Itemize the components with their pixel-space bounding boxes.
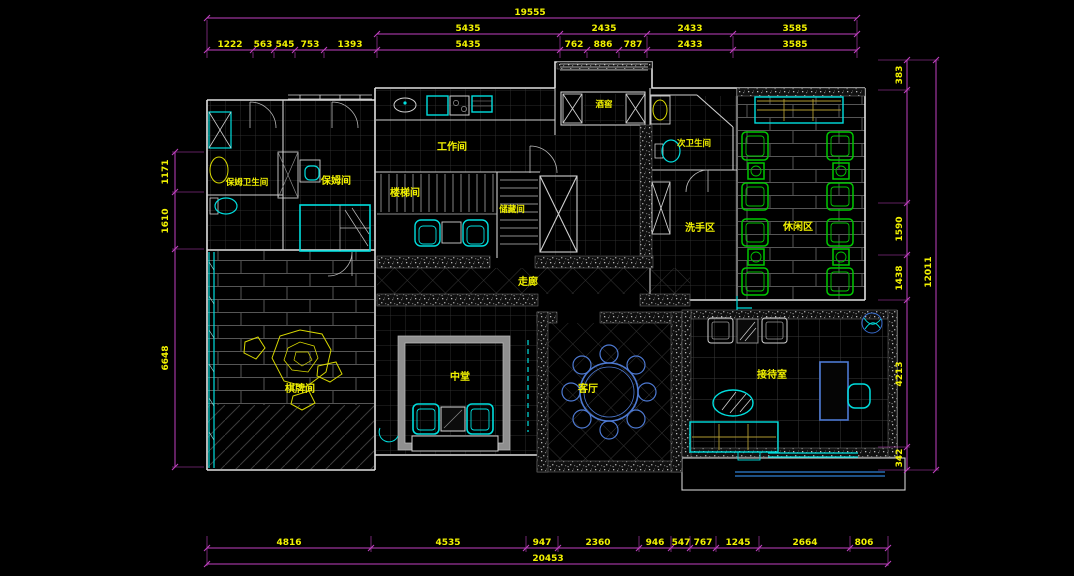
dim-top2-0: 5435 <box>455 24 480 34</box>
dim-right-0: 383 <box>895 66 905 85</box>
dim-right-overall: 12011 <box>924 256 934 287</box>
label-second-bathroom: 次卫生间 <box>677 138 711 149</box>
dim-top3-1: 563 <box>254 40 273 50</box>
dim-bot-3: 2360 <box>585 538 610 548</box>
label-chess-room: 棋牌间 <box>284 382 315 395</box>
label-storage: 储藏间 <box>498 204 525 215</box>
dim-top3-8: 787 <box>624 40 643 50</box>
dim-bot-7: 1245 <box>725 538 750 548</box>
dim-top3-3: 753 <box>301 40 320 50</box>
dim-bot-0: 4816 <box>276 538 301 548</box>
label-leisure-area: 休闲区 <box>782 220 813 233</box>
label-wine-cellar: 酒窖 <box>595 99 613 110</box>
stair-nook-chairs <box>415 220 488 246</box>
dim-bot-6: 767 <box>694 538 713 548</box>
dim-left-0: 1171 <box>161 159 171 184</box>
dim-top3-4: 1393 <box>337 40 362 50</box>
dim-bot-8: 2664 <box>792 538 817 548</box>
dim-bot-2: 947 <box>533 538 552 548</box>
dim-bot-5: 547 <box>672 538 691 548</box>
dim-left-1: 1610 <box>161 208 171 233</box>
dim-bot-9: 806 <box>855 538 874 548</box>
dim-top3-0: 1222 <box>217 40 242 50</box>
dim-top3-10: 3585 <box>782 40 807 50</box>
dim-right-2: 1438 <box>895 265 905 290</box>
dim-top2-3: 3585 <box>782 24 807 34</box>
label-corridor: 走廊 <box>517 275 538 288</box>
label-stairwell: 楼梯间 <box>390 186 420 199</box>
label-wash-area: 洗手区 <box>685 221 715 234</box>
dim-right-3: 4213 <box>895 361 905 386</box>
dim-top3-2: 545 <box>276 40 295 50</box>
label-reception-room: 接待室 <box>757 368 787 381</box>
dim-top2-2: 2433 <box>677 24 702 34</box>
label-nanny-room: 保姆间 <box>320 174 351 187</box>
dim-top3-6: 762 <box>565 40 584 50</box>
dim-top3-5: 5435 <box>455 40 480 50</box>
dim-left-2: 6648 <box>161 345 171 370</box>
dim-right-4: 342 <box>895 449 905 468</box>
label-workroom: 工作间 <box>437 140 467 153</box>
dim-bot-4: 946 <box>646 538 665 548</box>
cad-drawing-canvas[interactable]: 保姆卫生间 保姆间 工作间 楼梯间 储藏间 酒窖 次卫生间 洗手区 休闲区 走廊… <box>0 0 1074 576</box>
dim-top3-9: 2433 <box>677 40 702 50</box>
dim-right-1: 1590 <box>895 216 905 241</box>
dim-top2-1: 2435 <box>591 24 616 34</box>
floorplan-svg: 保姆卫生间 保姆间 工作间 楼梯间 储藏间 酒窖 次卫生间 洗手区 休闲区 走廊… <box>0 0 1074 576</box>
label-nanny-bathroom: 保姆卫生间 <box>225 177 269 188</box>
dim-top-overall: 19555 <box>514 8 545 18</box>
dim-bot-1: 4535 <box>435 538 460 548</box>
label-central-hall: 中堂 <box>450 370 470 383</box>
label-living-room: 客厅 <box>577 382 598 395</box>
dim-bottom-overall: 20453 <box>532 554 563 564</box>
dim-top3-7: 886 <box>594 40 613 50</box>
